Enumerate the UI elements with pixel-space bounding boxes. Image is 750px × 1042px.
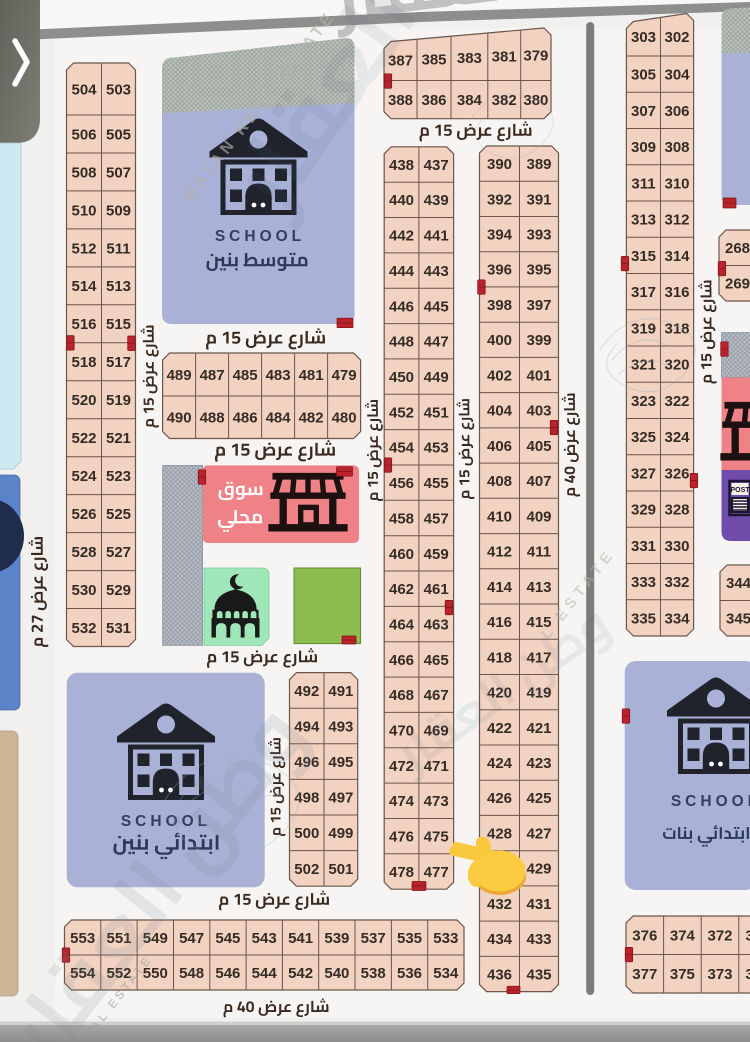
svg-text:269: 269	[725, 276, 750, 293]
svg-text:484: 484	[266, 410, 292, 427]
svg-text:SCHOOL: SCHOOL	[121, 813, 211, 830]
svg-text:418: 418	[487, 649, 512, 666]
svg-text:463: 463	[424, 617, 449, 634]
svg-text:385: 385	[421, 51, 446, 68]
svg-text:381: 381	[492, 49, 517, 66]
svg-text:488: 488	[200, 410, 225, 427]
svg-text:442: 442	[389, 228, 414, 245]
svg-text:477: 477	[424, 864, 449, 881]
svg-text:389: 389	[526, 156, 551, 173]
svg-text:452: 452	[389, 404, 414, 421]
svg-text:498: 498	[294, 790, 319, 807]
svg-text:464: 464	[389, 617, 415, 634]
svg-text:511: 511	[106, 240, 130, 257]
svg-text:482: 482	[299, 410, 324, 427]
svg-text:397: 397	[526, 297, 551, 314]
svg-text:483: 483	[266, 367, 291, 384]
svg-text:499: 499	[328, 825, 353, 842]
svg-text:435: 435	[526, 966, 551, 983]
svg-text:SCHOOL: SCHOOL	[215, 228, 305, 245]
svg-text:536: 536	[397, 965, 422, 982]
svg-text:529: 529	[106, 582, 131, 599]
svg-text:373: 373	[707, 966, 732, 983]
svg-text:460: 460	[389, 546, 414, 563]
svg-text:388: 388	[388, 92, 413, 109]
svg-text:549: 549	[143, 930, 168, 947]
svg-text:395: 395	[526, 262, 551, 279]
svg-text:421: 421	[526, 720, 551, 737]
svg-text:504: 504	[71, 81, 97, 98]
svg-text:379: 379	[523, 47, 548, 64]
svg-text:532: 532	[71, 620, 96, 637]
svg-text:521: 521	[106, 430, 131, 447]
svg-text:457: 457	[424, 510, 449, 527]
svg-text:465: 465	[424, 652, 449, 669]
svg-text:516: 516	[71, 316, 96, 333]
svg-text:480: 480	[332, 410, 357, 427]
svg-text:413: 413	[526, 579, 551, 596]
svg-text:479: 479	[332, 367, 357, 384]
svg-text:401: 401	[526, 367, 551, 384]
svg-text:451: 451	[424, 404, 449, 421]
svg-text:332: 332	[664, 574, 689, 591]
svg-text:314: 314	[664, 248, 690, 265]
svg-text:322: 322	[664, 393, 689, 410]
svg-text:422: 422	[487, 720, 512, 737]
svg-text:496: 496	[294, 754, 319, 771]
svg-text:420: 420	[487, 685, 512, 702]
svg-text:382: 382	[492, 92, 517, 109]
svg-text:497: 497	[328, 790, 353, 807]
svg-text:548: 548	[179, 965, 204, 982]
svg-text:502: 502	[294, 861, 319, 878]
svg-text:507: 507	[106, 164, 131, 181]
svg-text:303: 303	[631, 29, 656, 46]
svg-text:481: 481	[299, 367, 324, 384]
svg-text:394: 394	[487, 227, 513, 244]
svg-text:473: 473	[424, 793, 449, 810]
svg-text:434: 434	[487, 931, 513, 948]
svg-text:371: 371	[745, 966, 750, 983]
svg-text:487: 487	[200, 367, 225, 384]
svg-text:472: 472	[389, 758, 414, 775]
svg-text:458: 458	[389, 510, 414, 527]
svg-text:383: 383	[457, 50, 482, 67]
svg-text:469: 469	[424, 723, 449, 740]
svg-text:531: 531	[106, 620, 131, 637]
svg-text:450: 450	[389, 369, 414, 386]
svg-text:320: 320	[664, 357, 689, 374]
svg-text:429: 429	[526, 861, 551, 878]
svg-text:319: 319	[631, 320, 656, 337]
svg-text:441: 441	[424, 228, 449, 245]
svg-text:312: 312	[664, 212, 689, 229]
svg-text:318: 318	[664, 320, 689, 337]
svg-text:453: 453	[424, 440, 449, 457]
svg-text:537: 537	[361, 930, 386, 947]
svg-text:545: 545	[215, 930, 240, 947]
svg-text:396: 396	[487, 262, 512, 279]
svg-text:543: 543	[252, 930, 277, 947]
svg-text:407: 407	[526, 473, 551, 490]
svg-text:474: 474	[389, 793, 415, 810]
svg-text:419: 419	[526, 685, 551, 702]
svg-text:493: 493	[328, 718, 353, 735]
svg-text:525: 525	[106, 506, 131, 523]
svg-text:454: 454	[389, 440, 415, 457]
svg-text:476: 476	[389, 829, 414, 846]
svg-text:344: 344	[726, 575, 750, 592]
svg-text:302: 302	[664, 29, 689, 46]
svg-text:328: 328	[664, 502, 689, 519]
svg-text:345: 345	[726, 611, 750, 628]
svg-text:466: 466	[389, 652, 414, 669]
svg-text:411: 411	[527, 544, 551, 561]
svg-text:372: 372	[707, 928, 732, 945]
svg-text:547: 547	[179, 930, 204, 947]
svg-text:538: 538	[361, 965, 386, 982]
svg-text:506: 506	[71, 126, 96, 143]
svg-text:501: 501	[328, 861, 353, 878]
svg-text:490: 490	[167, 410, 192, 427]
svg-text:551: 551	[106, 930, 131, 947]
svg-text:414: 414	[487, 579, 513, 596]
svg-text:386: 386	[421, 92, 446, 109]
svg-text:380: 380	[523, 92, 548, 109]
svg-text:448: 448	[389, 334, 414, 351]
svg-text:398: 398	[487, 297, 512, 314]
svg-text:432: 432	[487, 896, 512, 913]
svg-text:268: 268	[725, 240, 750, 257]
svg-text:316: 316	[664, 284, 689, 301]
svg-text:305: 305	[631, 67, 656, 84]
svg-text:438: 438	[389, 157, 414, 174]
svg-text:377: 377	[632, 966, 657, 983]
svg-text:503: 503	[106, 81, 131, 98]
svg-text:406: 406	[487, 438, 512, 455]
svg-text:552: 552	[106, 965, 131, 982]
svg-text:331: 331	[631, 538, 656, 555]
svg-text:492: 492	[294, 683, 319, 700]
svg-text:443: 443	[424, 263, 449, 280]
svg-text:541: 541	[288, 930, 313, 947]
svg-text:505: 505	[106, 126, 131, 143]
svg-text:417: 417	[526, 649, 551, 666]
svg-text:425: 425	[526, 790, 551, 807]
svg-text:428: 428	[487, 826, 512, 843]
svg-text:544: 544	[252, 965, 278, 982]
svg-text:405: 405	[526, 438, 551, 455]
svg-text:323: 323	[631, 393, 656, 410]
svg-text:449: 449	[424, 369, 449, 386]
svg-text:404: 404	[487, 403, 513, 420]
svg-text:392: 392	[487, 191, 512, 208]
svg-text:307: 307	[631, 103, 656, 120]
svg-text:515: 515	[106, 316, 131, 333]
svg-text:527: 527	[106, 544, 131, 561]
svg-text:313: 313	[631, 212, 656, 229]
svg-text:534: 534	[433, 965, 459, 982]
svg-text:402: 402	[487, 367, 512, 384]
svg-text:315: 315	[631, 248, 656, 265]
svg-text:519: 519	[106, 392, 131, 409]
svg-text:523: 523	[106, 468, 131, 485]
svg-text:530: 530	[71, 582, 96, 599]
svg-text:433: 433	[526, 931, 551, 948]
svg-text:522: 522	[71, 430, 96, 447]
svg-text:517: 517	[106, 354, 131, 371]
svg-text:415: 415	[526, 614, 551, 631]
svg-text:375: 375	[670, 966, 695, 983]
svg-text:462: 462	[389, 581, 414, 598]
svg-text:468: 468	[389, 687, 414, 704]
svg-text:427: 427	[526, 826, 551, 843]
svg-text:309: 309	[631, 139, 656, 156]
svg-text:459: 459	[424, 546, 449, 563]
svg-text:478: 478	[389, 864, 414, 881]
svg-text:445: 445	[424, 298, 449, 315]
svg-text:403: 403	[526, 403, 551, 420]
svg-text:400: 400	[487, 332, 512, 349]
svg-text:329: 329	[631, 502, 656, 519]
svg-text:335: 335	[631, 610, 656, 627]
svg-text:461: 461	[424, 581, 449, 598]
svg-text:423: 423	[526, 755, 551, 772]
svg-text:553: 553	[70, 930, 95, 947]
svg-text:447: 447	[424, 334, 449, 351]
svg-text:444: 444	[389, 263, 415, 280]
svg-text:528: 528	[71, 544, 96, 561]
svg-text:550: 550	[143, 965, 168, 982]
svg-text:SCHOOL: SCHOOL	[671, 793, 750, 810]
svg-text:467: 467	[424, 687, 449, 704]
svg-text:489: 489	[167, 367, 192, 384]
svg-text:431: 431	[526, 896, 551, 913]
svg-text:376: 376	[632, 928, 657, 945]
svg-text:510: 510	[71, 202, 96, 219]
svg-text:306: 306	[664, 103, 689, 120]
svg-text:308: 308	[664, 139, 689, 156]
svg-text:491: 491	[328, 683, 353, 700]
svg-text:384: 384	[457, 92, 483, 109]
svg-text:471: 471	[424, 758, 449, 775]
svg-text:412: 412	[487, 544, 512, 561]
svg-text:542: 542	[288, 965, 313, 982]
svg-text:399: 399	[526, 332, 551, 349]
svg-text:475: 475	[424, 829, 449, 846]
svg-text:326: 326	[664, 465, 689, 482]
svg-text:424: 424	[487, 755, 513, 772]
svg-text:533: 533	[433, 930, 458, 947]
svg-text:304: 304	[664, 67, 690, 84]
svg-text:526: 526	[71, 506, 96, 523]
svg-text:416: 416	[487, 614, 512, 631]
svg-text:370: 370	[745, 928, 750, 945]
svg-text:426: 426	[487, 790, 512, 807]
svg-text:495: 495	[328, 754, 353, 771]
svg-text:455: 455	[424, 475, 449, 492]
svg-text:321: 321	[631, 357, 656, 374]
svg-text:410: 410	[487, 508, 512, 525]
svg-text:391: 391	[526, 191, 551, 208]
svg-text:485: 485	[233, 367, 258, 384]
svg-text:554: 554	[70, 965, 96, 982]
svg-text:440: 440	[389, 192, 414, 209]
svg-text:390: 390	[487, 156, 512, 173]
svg-text:540: 540	[324, 965, 349, 982]
svg-text:513: 513	[106, 278, 131, 295]
svg-text:387: 387	[388, 53, 413, 70]
svg-text:408: 408	[487, 473, 512, 490]
svg-text:486: 486	[233, 410, 258, 427]
svg-text:509: 509	[106, 202, 131, 219]
svg-text:437: 437	[424, 157, 449, 174]
svg-text:514: 514	[71, 278, 97, 295]
svg-text:409: 409	[526, 508, 551, 525]
svg-text:500: 500	[294, 825, 319, 842]
svg-text:518: 518	[71, 354, 96, 371]
svg-text:330: 330	[664, 538, 689, 555]
svg-text:436: 436	[487, 966, 512, 983]
svg-text:317: 317	[631, 284, 656, 301]
svg-text:446: 446	[389, 298, 414, 315]
svg-text:333: 333	[631, 574, 656, 591]
svg-text:334: 334	[664, 610, 690, 627]
svg-text:327: 327	[631, 465, 656, 482]
svg-text:508: 508	[71, 164, 96, 181]
svg-text:524: 524	[71, 468, 97, 485]
svg-text:439: 439	[424, 192, 449, 209]
svg-text:393: 393	[526, 227, 551, 244]
svg-text:324: 324	[664, 429, 690, 446]
svg-text:470: 470	[389, 723, 414, 740]
svg-text:374: 374	[670, 928, 696, 945]
svg-text:535: 535	[397, 930, 422, 947]
svg-text:539: 539	[324, 930, 349, 947]
svg-text:311: 311	[631, 175, 655, 192]
svg-text:546: 546	[215, 965, 240, 982]
svg-text:520: 520	[71, 392, 96, 409]
svg-text:325: 325	[631, 429, 656, 446]
svg-text:512: 512	[71, 240, 96, 257]
svg-text:494: 494	[294, 718, 320, 735]
svg-text:310: 310	[664, 175, 689, 192]
svg-text:456: 456	[389, 475, 414, 492]
